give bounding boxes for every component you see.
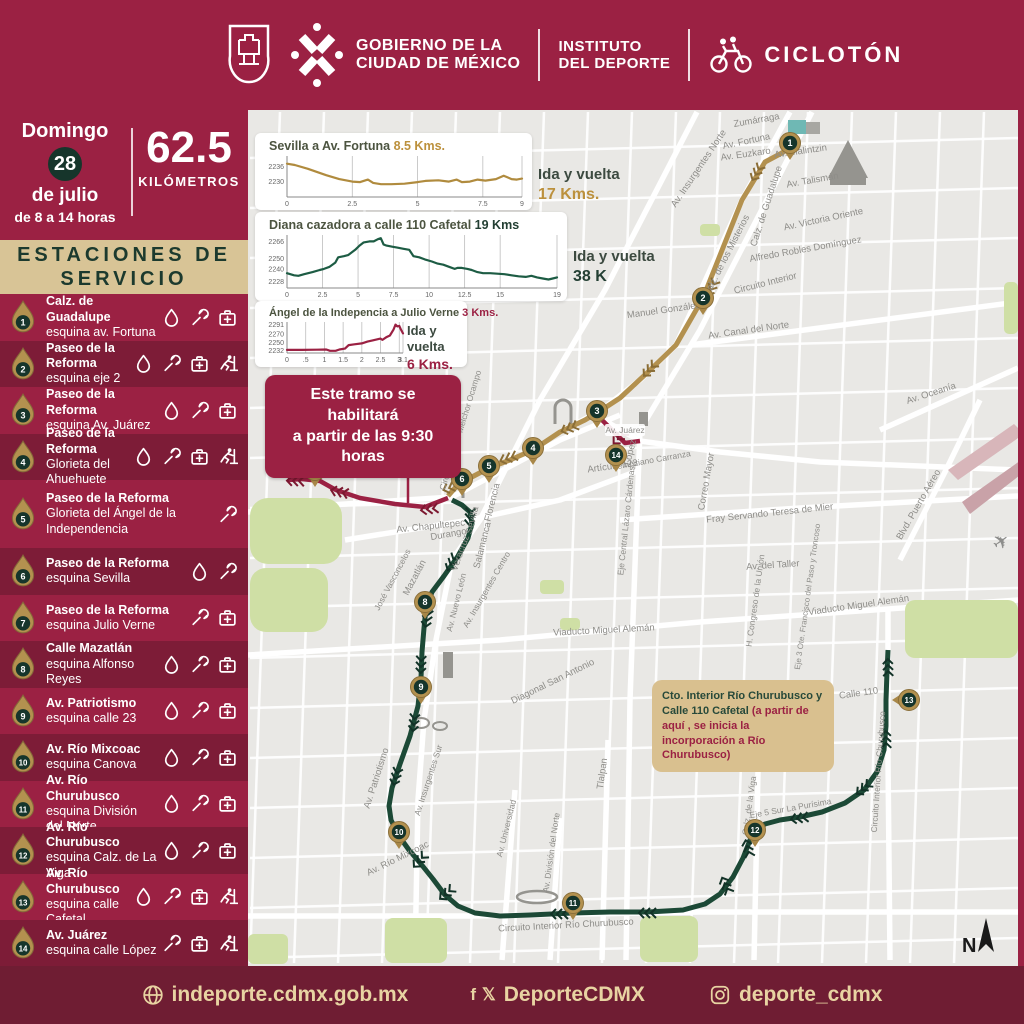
wrench-icon <box>189 400 210 421</box>
wrench-icon <box>161 353 182 374</box>
social-item: f 𝕏 DeporteCDMX <box>472 983 645 1007</box>
station-name: Paseo de la ReformaGlorieta del Ahuehuet… <box>46 426 133 487</box>
instagram-icon <box>709 984 731 1006</box>
chart2-distance: 19 Kms <box>475 218 519 232</box>
month: de julio <box>0 185 130 207</box>
station-row-7: 7Paseo de la Reformaesquina Julio Verne <box>0 595 248 642</box>
header-divider <box>538 29 540 81</box>
water-icon <box>189 561 210 582</box>
water-icon <box>161 654 182 675</box>
aid-icon <box>189 446 210 467</box>
bicycle-icon <box>708 35 754 75</box>
inst-line2: DEL DEPORTE <box>558 55 670 72</box>
svg-text:10: 10 <box>19 759 28 768</box>
svg-text:12: 12 <box>751 826 760 835</box>
svg-text:13: 13 <box>905 696 914 705</box>
wrench-icon <box>189 840 210 861</box>
runner-icon <box>217 933 238 954</box>
elevation-chart-sevilla: Sevilla a Av. Fortuna 8.5 Kms. 02.557.59… <box>255 133 532 210</box>
station-pin-icon: 2 <box>8 346 38 382</box>
water-icon <box>161 747 182 768</box>
station-row-14: 14Av. Juárezesquina calle López <box>0 920 248 967</box>
wrench-icon <box>217 504 238 525</box>
water-icon <box>133 886 154 907</box>
svg-text:6: 6 <box>459 474 464 484</box>
station-name: Paseo de la ReformaGlorieta del Ángel de… <box>46 491 217 537</box>
gov-line2: CIUDAD DE MÉXICO <box>356 55 520 73</box>
runner-icon <box>217 886 238 907</box>
distance-value: 62.5 <box>130 126 248 170</box>
station-name: Paseo de la Reformaesquina Sevilla <box>46 556 189 587</box>
svg-text:12.5: 12.5 <box>458 292 472 299</box>
station-pin-icon: 10 <box>8 739 38 775</box>
wrench-icon <box>217 561 238 582</box>
chart2-note: Ida y vuelta 38 K <box>573 248 655 287</box>
svg-text:2: 2 <box>360 357 364 364</box>
water-icon <box>161 307 182 328</box>
wrench-icon <box>189 607 210 628</box>
x-twitter-icon: 𝕏 <box>482 985 496 1005</box>
wrench-icon <box>189 700 210 721</box>
cicloton-poster: ✈ZumárragaAv. Insurgentes NorteAv. Fortu… <box>0 0 1024 1024</box>
svg-text:9: 9 <box>418 682 423 692</box>
station-row-6: 6Paseo de la Reformaesquina Sevilla <box>0 548 248 595</box>
callout-cafetal: Cto. Interior Río Churubusco y Calle 110… <box>652 680 834 772</box>
svg-text:2.5: 2.5 <box>318 292 328 299</box>
aid-icon <box>217 400 238 421</box>
svg-text:0: 0 <box>285 292 289 299</box>
wrench-icon <box>189 793 210 814</box>
svg-text:9: 9 <box>520 201 524 208</box>
station-pin-icon: 8 <box>8 646 38 682</box>
station-row-9: 9Av. Patriotismoesquina calle 23 <box>0 688 248 735</box>
station-pin-icon: 3 <box>8 392 38 428</box>
station-name: Av. Juárezesquina calle López <box>46 928 161 959</box>
svg-text:10: 10 <box>395 828 404 837</box>
svg-text:2230: 2230 <box>268 179 284 186</box>
station-pin-icon: 9 <box>8 693 38 729</box>
station-row-5: 5Paseo de la ReformaGlorieta del Ángel d… <box>0 480 248 548</box>
svg-text:7.5: 7.5 <box>389 292 399 299</box>
distance-unit: KILÓMETROS <box>130 174 248 189</box>
station-name: Calz. de Guadalupeesquina av. Fortuna <box>46 294 161 340</box>
water-icon <box>161 400 182 421</box>
date-block: Domingo 28 de julio de 8 a 14 horas 62.5… <box>0 110 248 238</box>
wrench-icon <box>161 446 182 467</box>
facebook-icon: f <box>470 985 476 1005</box>
svg-text:8: 8 <box>20 665 25 675</box>
chart1-title: Sevilla a Av. Fortuna <box>269 139 394 153</box>
wrench-icon <box>161 886 182 907</box>
svg-text:11: 11 <box>19 805 28 814</box>
wrench-icon <box>161 933 182 954</box>
station-name: Av. Río Mixcoacesquina Canova <box>46 742 161 773</box>
runner-icon <box>217 446 238 467</box>
station-row-2: 2Paseo de la Reformaesquina eje 2 <box>0 341 248 388</box>
inst-line1: INSTITUTO <box>558 38 670 55</box>
svg-text:7.5: 7.5 <box>478 201 488 208</box>
station-pin-icon: 5 <box>8 496 38 532</box>
globe-icon <box>142 984 164 1006</box>
station-pin-icon: 13 <box>8 879 38 915</box>
header: GOBIERNO DE LA CIUDAD DE MÉXICO INSTITUT… <box>0 0 1024 110</box>
svg-text:Av. Juárez: Av. Juárez <box>605 425 644 435</box>
chart1-distance: 8.5 Kms. <box>394 139 445 153</box>
svg-text:19: 19 <box>553 292 561 299</box>
runner-icon <box>217 353 238 374</box>
footer: indeporte.cdmx.gob.mx f 𝕏 DeporteCDMX de… <box>0 966 1024 1024</box>
wrench-icon <box>189 654 210 675</box>
svg-text:1: 1 <box>322 357 326 364</box>
svg-text:4: 4 <box>20 457 25 467</box>
svg-text:2291: 2291 <box>268 322 284 329</box>
svg-text:3: 3 <box>594 406 599 416</box>
station-pin-icon: 12 <box>8 832 38 868</box>
aid-icon <box>217 700 238 721</box>
station-pin-icon: 14 <box>8 925 38 961</box>
station-pin-icon: 1 <box>8 299 38 335</box>
station-row-13: 13Av. Río Churubuscoesquina calle Cafeta… <box>0 874 248 921</box>
svg-text:14: 14 <box>19 945 28 954</box>
svg-text:2266: 2266 <box>268 239 284 246</box>
aid-icon <box>217 747 238 768</box>
stations-title: ESTACIONES DE SERVICIO <box>0 240 248 294</box>
svg-text:1.5: 1.5 <box>338 357 348 364</box>
svg-text:2232: 2232 <box>268 348 284 355</box>
chart2-title: Diana cazadora a calle 110 Cafetal <box>269 218 475 232</box>
wrench-icon <box>189 307 210 328</box>
station-pin-icon: 4 <box>8 439 38 475</box>
svg-text:2228: 2228 <box>268 279 284 286</box>
svg-text:10: 10 <box>425 292 433 299</box>
elevation-chart-angel: Ángel de la Indepencia a Julio Verne 3 K… <box>255 301 467 367</box>
svg-text:1: 1 <box>787 138 792 148</box>
website-text: indeporte.cdmx.gob.mx <box>172 983 409 1007</box>
station-pin-icon: 11 <box>8 786 38 822</box>
aid-icon <box>217 840 238 861</box>
svg-text:2240: 2240 <box>268 266 284 273</box>
social-text: DeporteCDMX <box>504 983 645 1007</box>
chart1-note: Ida y vuelta 17 Kms. <box>538 166 620 205</box>
svg-text:14: 14 <box>612 451 621 460</box>
station-name: Av. Patriotismoesquina calle 23 <box>46 696 161 727</box>
svg-text:N: N <box>962 935 976 957</box>
water-icon <box>161 840 182 861</box>
svg-text:2270: 2270 <box>268 331 284 338</box>
station-pin-icon: 6 <box>8 553 38 589</box>
station-row-1: 1Calz. de Guadalupeesquina av. Fortuna <box>0 294 248 341</box>
water-icon <box>133 446 154 467</box>
date-divider <box>131 128 133 216</box>
instagram-item: deporte_cdmx <box>709 983 883 1007</box>
wrench-icon <box>189 747 210 768</box>
svg-text:12: 12 <box>19 852 28 861</box>
cdmx-x-logo <box>288 20 346 90</box>
website-item: indeporte.cdmx.gob.mx <box>142 983 409 1007</box>
header-divider-2 <box>688 29 690 81</box>
aid-icon <box>217 607 238 628</box>
svg-text:2250: 2250 <box>268 340 284 347</box>
station-name: Av. Río Churubuscoesquina calle Cafetal <box>46 866 133 927</box>
callout-tramo: Este tramo se habilitará a partir de las… <box>265 375 461 478</box>
event-name: CICLOTÓN <box>764 42 903 67</box>
gov-line1: GOBIERNO DE LA <box>356 37 520 55</box>
instagram-text: deporte_cdmx <box>739 983 883 1007</box>
station-pin-icon: 7 <box>8 600 38 636</box>
aid-icon <box>189 886 210 907</box>
water-icon <box>161 700 182 721</box>
aid-icon <box>217 307 238 328</box>
aid-icon <box>217 654 238 675</box>
svg-text:8: 8 <box>422 597 427 607</box>
svg-text:2.5: 2.5 <box>347 201 357 208</box>
svg-text:1: 1 <box>20 318 25 328</box>
svg-text:5: 5 <box>356 292 360 299</box>
svg-text:11: 11 <box>569 899 578 908</box>
stations-list: 1Calz. de Guadalupeesquina av. Fortuna2P… <box>0 294 248 967</box>
svg-text:3: 3 <box>20 411 25 421</box>
station-name: Paseo de la Reformaesquina eje 2 <box>46 341 133 387</box>
svg-text:2: 2 <box>20 364 25 374</box>
svg-text:0: 0 <box>285 201 289 208</box>
water-icon <box>161 793 182 814</box>
svg-text:15: 15 <box>496 292 504 299</box>
chart3-title: Ángel de la Indepencia a Julio Verne <box>269 307 462 319</box>
station-name: Paseo de la Reformaesquina Julio Verne <box>46 603 189 634</box>
svg-text:2: 2 <box>700 293 705 303</box>
svg-text:5: 5 <box>416 201 420 208</box>
elevation-chart-diana: Diana cazadora a calle 110 Cafetal 19 Km… <box>255 212 567 301</box>
day-number-badge: 28 <box>48 147 82 181</box>
svg-text:0: 0 <box>285 357 289 364</box>
station-name: Calle Mazatlánesquina Alfonso Reyes <box>46 641 161 687</box>
svg-text:4: 4 <box>530 443 535 453</box>
aid-icon <box>189 353 210 374</box>
day-name: Domingo <box>0 120 130 143</box>
svg-text:.5: .5 <box>303 357 309 364</box>
water-icon <box>133 353 154 374</box>
hours: de 8 a 14 horas <box>0 209 130 225</box>
cdmx-shield-logo <box>226 22 272 88</box>
aid-icon <box>217 793 238 814</box>
station-row-4: 4Paseo de la ReformaGlorieta del Ahuehue… <box>0 434 248 481</box>
chart3-note: Ida y vuelta 6 Kms. <box>407 323 467 373</box>
svg-text:5: 5 <box>20 514 25 524</box>
svg-text:2236: 2236 <box>268 164 284 171</box>
aid-icon <box>189 933 210 954</box>
svg-text:13: 13 <box>19 898 28 907</box>
svg-text:2250: 2250 <box>268 256 284 263</box>
sidebar: Domingo 28 de julio de 8 a 14 horas 62.5… <box>0 110 248 966</box>
svg-text:2.5: 2.5 <box>376 357 386 364</box>
svg-text:5: 5 <box>486 461 491 471</box>
svg-text:6: 6 <box>20 572 25 582</box>
station-row-8: 8Calle Mazatlánesquina Alfonso Reyes <box>0 641 248 688</box>
svg-text:9: 9 <box>20 711 25 721</box>
svg-text:7: 7 <box>20 618 25 628</box>
chart3-distance: 3 Kms. <box>462 307 498 319</box>
